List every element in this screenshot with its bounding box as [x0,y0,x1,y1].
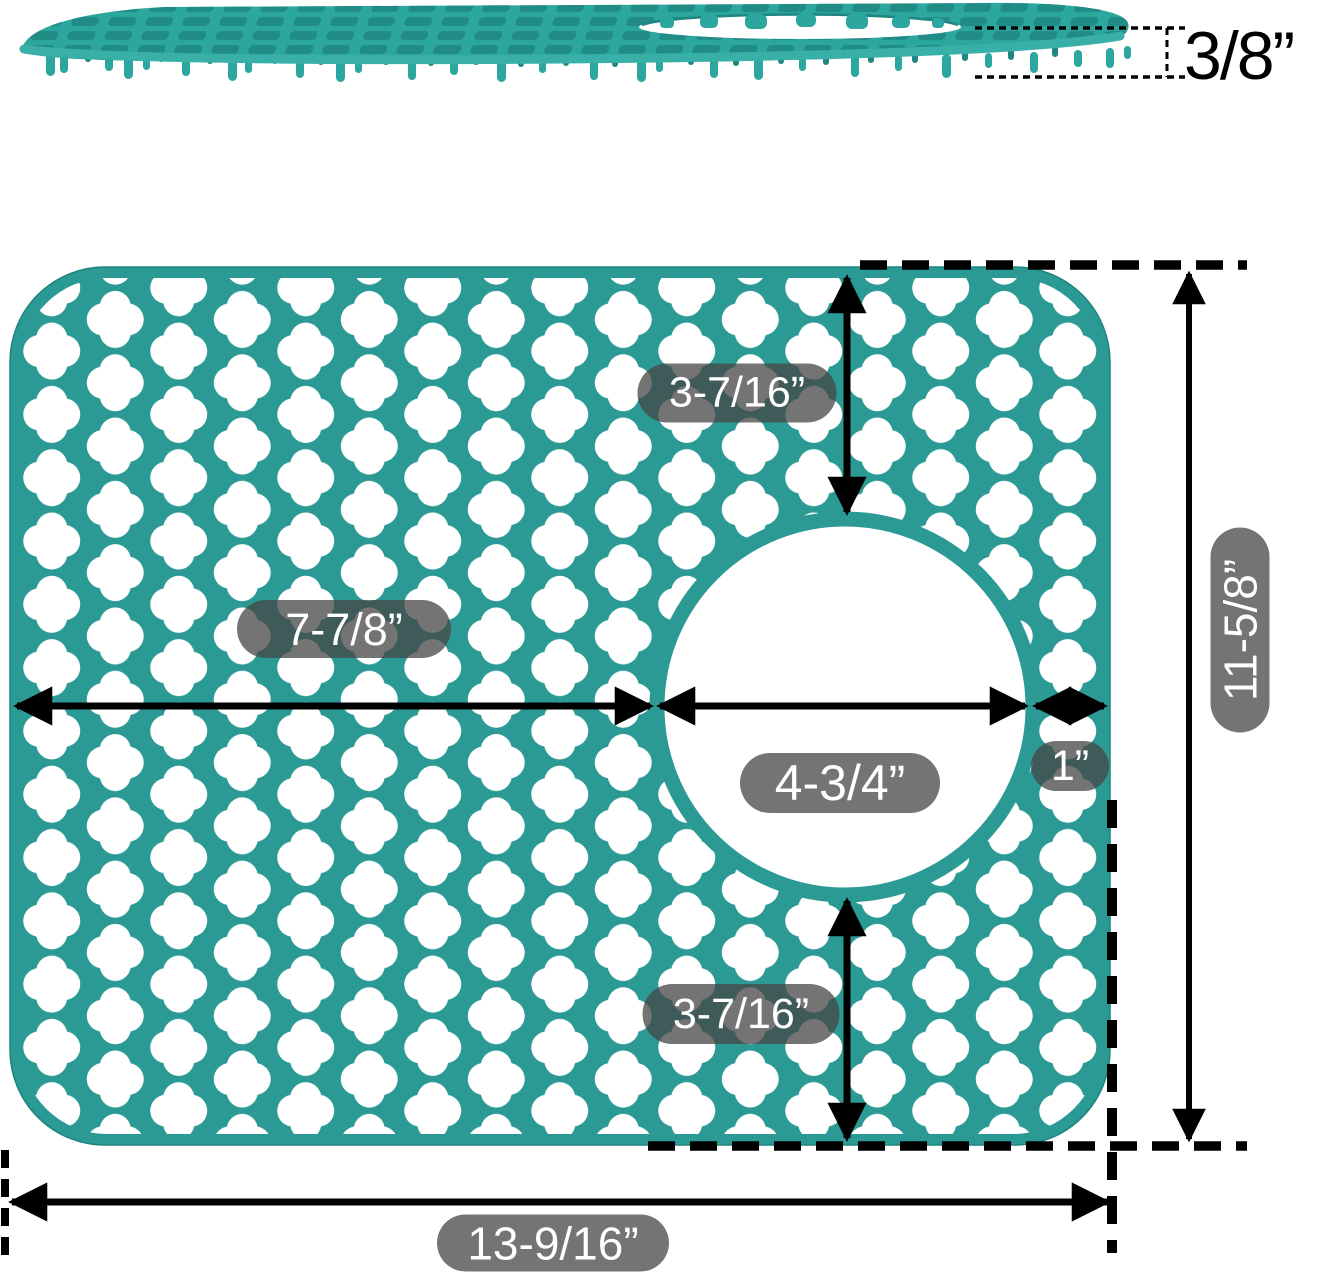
dim-label-bottom-gap: 3-7/16” [643,984,840,1044]
dim-label-right-gap: 1” [1031,741,1109,791]
dim-label-top-gap: 3-7/16” [638,364,837,423]
dim-label-total-height: 11-5/8” [1211,528,1270,733]
thickness-label: 3/8” [1184,22,1293,90]
dim-label-hole-diameter: 4-3/4” [740,753,940,813]
side-view-mat [22,3,1131,82]
dim-label-total-width: 13-9/16” [437,1215,669,1272]
sink-mat-dimension-diagram: 3/8” 3-7/16” 7-7/8” 4-3/4” 1” 11-5/8” 3-… [0,0,1322,1279]
dim-label-left-width: 7-7/8” [237,600,451,658]
diagram-canvas [0,0,1322,1279]
